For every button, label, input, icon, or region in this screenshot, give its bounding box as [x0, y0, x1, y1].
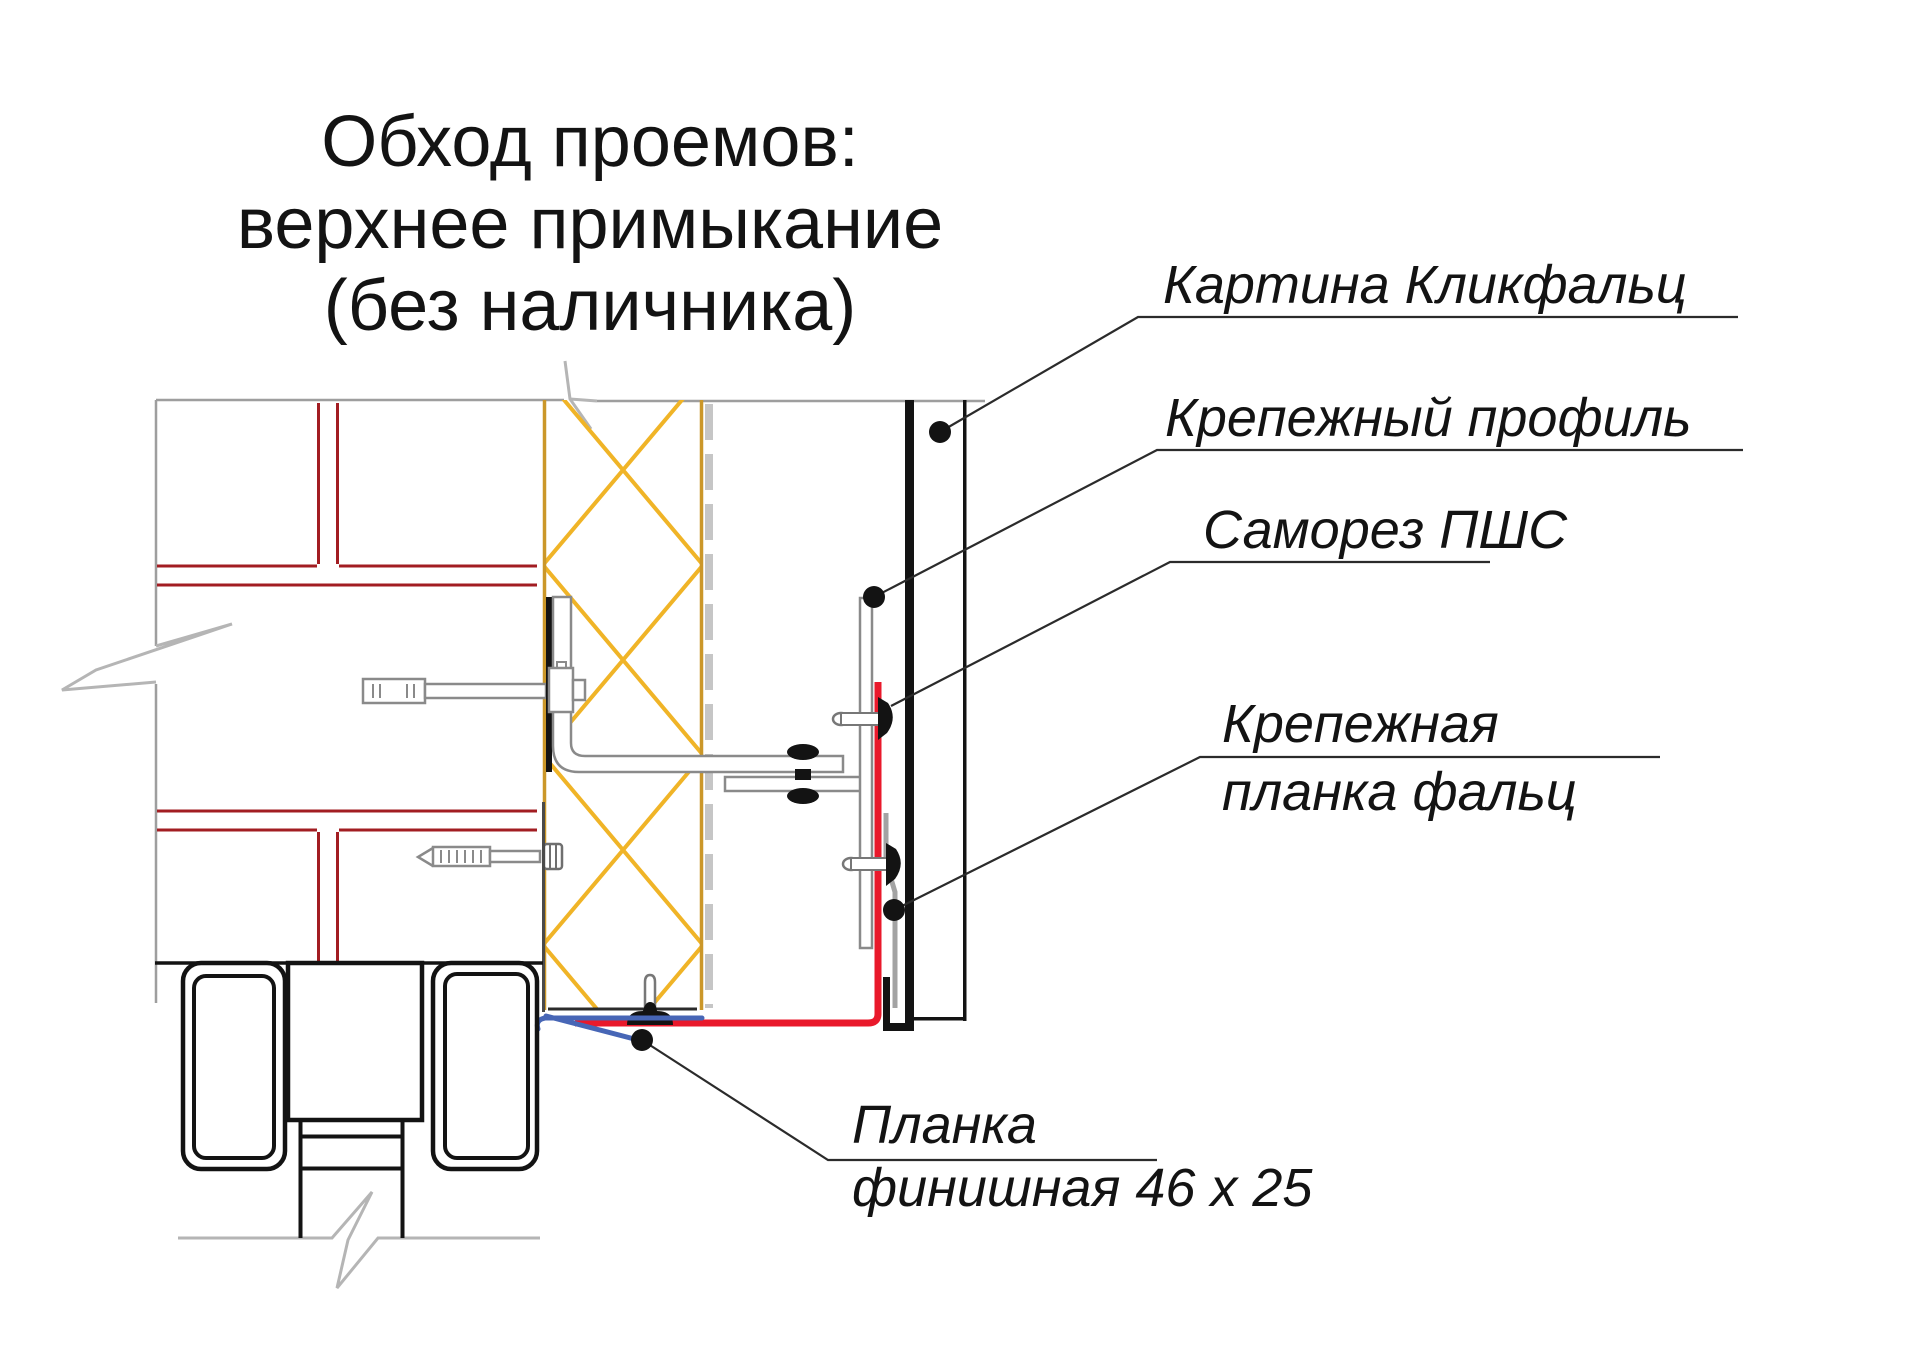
mortar-joints — [157, 403, 537, 962]
callout-labels: Картина Кликфальц Крепежный профиль Само… — [852, 255, 1691, 1218]
panel-face — [905, 400, 914, 1031]
callout-panel: Картина Кликфальц — [1163, 255, 1687, 315]
frame-chamber-left-inner — [194, 976, 274, 1158]
bracket-rivet-head-top — [787, 744, 819, 760]
bracket-rivet-head-bottom — [787, 788, 819, 804]
frame-chamber-right-outer — [433, 963, 537, 1169]
callout-screw: Саморез ПШС — [1203, 500, 1568, 560]
leader-dot-profile — [863, 586, 885, 608]
leader-dot-panel — [929, 421, 951, 443]
break-mark-bottom-line — [178, 1192, 540, 1288]
anchor-upper-rod — [425, 684, 546, 698]
bracket-rivet — [787, 744, 819, 804]
mortar-joint-vertical-upper — [319, 403, 338, 564]
callout-finish-line2: финишная 46 x 25 — [852, 1158, 1313, 1218]
panel-back-line — [963, 400, 967, 1021]
bracket-connector-bar — [725, 777, 861, 791]
screw-lower-shaft — [851, 858, 889, 870]
leader-screw — [891, 562, 1490, 706]
screw-upper-shaft — [841, 713, 879, 725]
drawing-title: Обход проемов: верхнее примыкание (без н… — [237, 102, 943, 346]
title-line-3: (без наличника) — [324, 266, 857, 346]
title-line-2: верхнее примыкание — [237, 184, 943, 264]
fastening-profile — [860, 598, 872, 948]
callout-falz-line1: Крепежная — [1222, 694, 1499, 754]
leader-dot-falz — [883, 899, 905, 921]
callout-falz-line2: планка фальц — [1222, 762, 1577, 822]
leader-dot-finish — [631, 1029, 653, 1051]
frame-body-middle — [288, 963, 422, 1120]
bracket-rivet-shaft — [795, 769, 811, 780]
anchor-upper — [363, 679, 546, 703]
l-bracket-washer-plate — [549, 668, 573, 712]
frame-chamber-left-outer — [183, 963, 285, 1169]
l-bracket-bolt-knob — [573, 680, 585, 700]
diagram-canvas: Обход проемов: верхнее примыкание (без н… — [0, 0, 1920, 1369]
panel-bottom-edge — [914, 1017, 963, 1021]
title-line-1: Обход проемов: — [321, 102, 858, 182]
anchor-lower — [418, 844, 562, 869]
panel-hook-return — [883, 977, 890, 1031]
anchor-lower-rod — [490, 851, 540, 862]
finish-strip-blue — [537, 1016, 702, 1040]
break-mark-left-wall — [62, 624, 232, 690]
screw-upper-washer — [878, 697, 893, 740]
drawing-sheet: Обход проемов: верхнее примыкание (без н… — [0, 0, 1920, 1369]
anchor-lower-bolt-head — [544, 844, 562, 869]
callout-finish-line1: Планка — [852, 1095, 1037, 1155]
callout-profile: Крепежный профиль — [1165, 388, 1691, 448]
break-marks — [62, 361, 597, 1288]
window-frame — [155, 963, 543, 1238]
frame-chamber-right-inner — [445, 974, 528, 1158]
screw-lower-washer — [886, 843, 901, 886]
mortar-joint-vertical-lower — [319, 832, 338, 962]
